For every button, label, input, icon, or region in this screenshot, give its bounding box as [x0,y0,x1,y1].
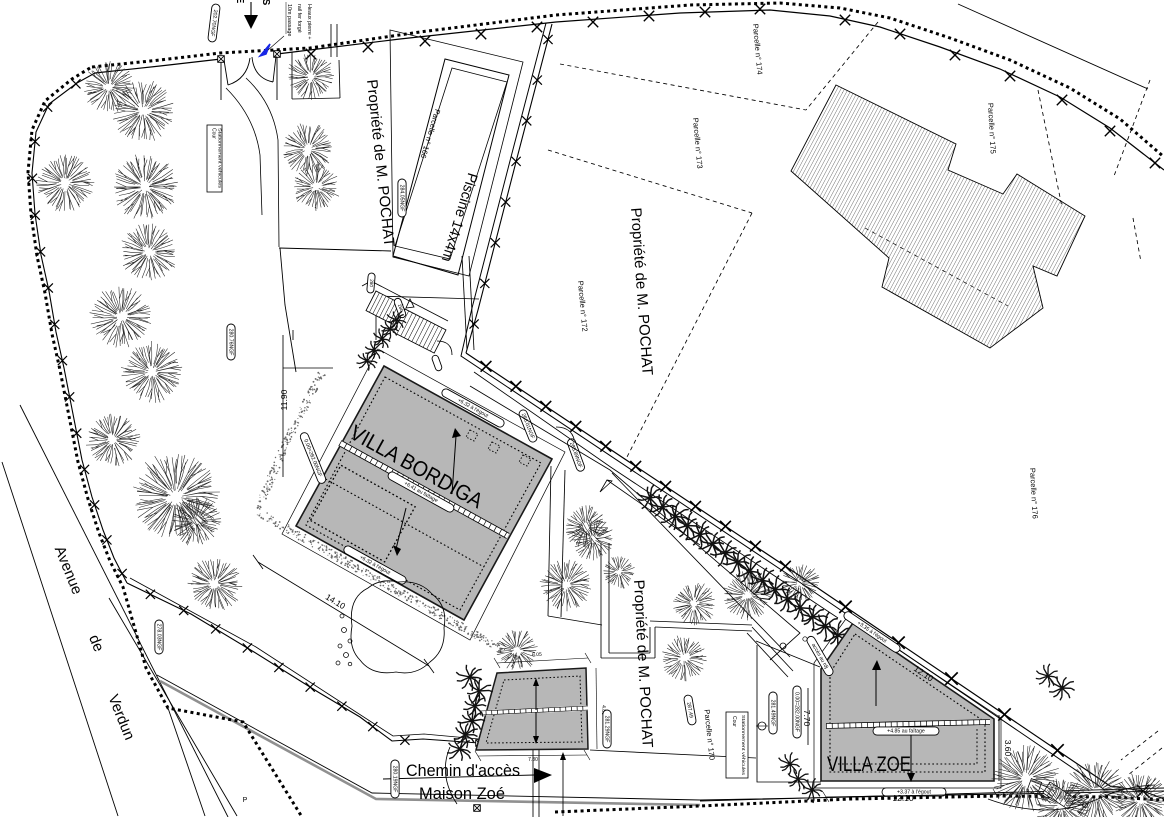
svg-text:280.76NGF: 280.76NGF [228,329,234,356]
svg-text:Stationnement véhicules: Stationnement véhicules [741,715,746,776]
svg-text:284.05NGF: 284.05NGF [399,185,405,212]
svg-text:Cour: Cour [211,128,217,139]
svg-text:7.70: 7.70 [802,710,812,727]
svg-text:281.29NGF: 281.29NGF [604,716,610,743]
svg-text:0.00=282.00NGF: 0.00=282.00NGF [794,692,800,732]
svg-text:S: S [260,0,271,6]
svg-text:Maison Zoé: Maison Zoé [419,785,505,803]
svg-text:Heaux pierre +: Heaux pierre + [306,4,312,40]
svg-text:P: P [243,797,248,804]
svg-text:Cour: Cour [731,716,737,727]
svg-text:12.10: 12.10 [892,793,914,803]
svg-text:281.49NGF: 281.49NGF [770,700,776,727]
svg-text:Stationnement véhicules: Stationnement véhicules [218,128,223,189]
svg-text:280.19NGF: 280.19NGF [392,766,398,793]
svg-text:278.03NGF: 278.03NGF [156,624,162,651]
svg-text:280: 280 [369,279,375,288]
svg-text:10m passage: 10m passage [286,4,292,36]
svg-text:E: E [234,0,245,4]
svg-text:VILLA ZOE: VILLA ZOE [827,752,911,776]
svg-text:+4.85 au faîtage: +4.85 au faîtage [887,729,925,735]
svg-text:11.90: 11.90 [279,389,289,410]
svg-text:rail fer forgé: rail fer forgé [296,4,302,33]
